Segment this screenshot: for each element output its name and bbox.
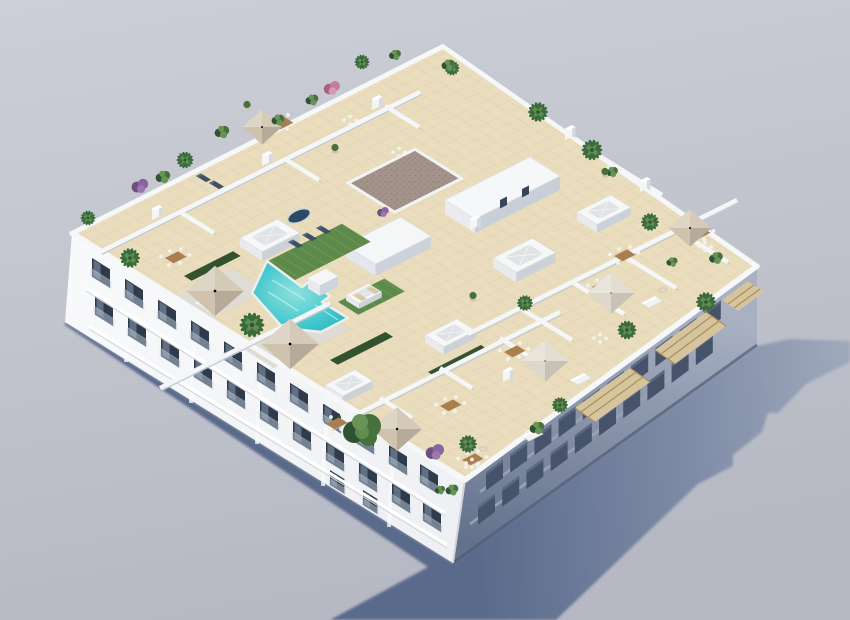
potted-plant <box>243 101 250 111</box>
architectural-render: Aerial isometric 3D rendering of a white… <box>0 0 850 620</box>
round-table <box>478 446 487 452</box>
potted-plant <box>469 292 476 302</box>
potted-plant <box>331 144 338 154</box>
render-stage: Aerial isometric 3D rendering of a white… <box>0 0 850 620</box>
round-table <box>658 287 667 293</box>
potted-plant <box>601 168 608 178</box>
